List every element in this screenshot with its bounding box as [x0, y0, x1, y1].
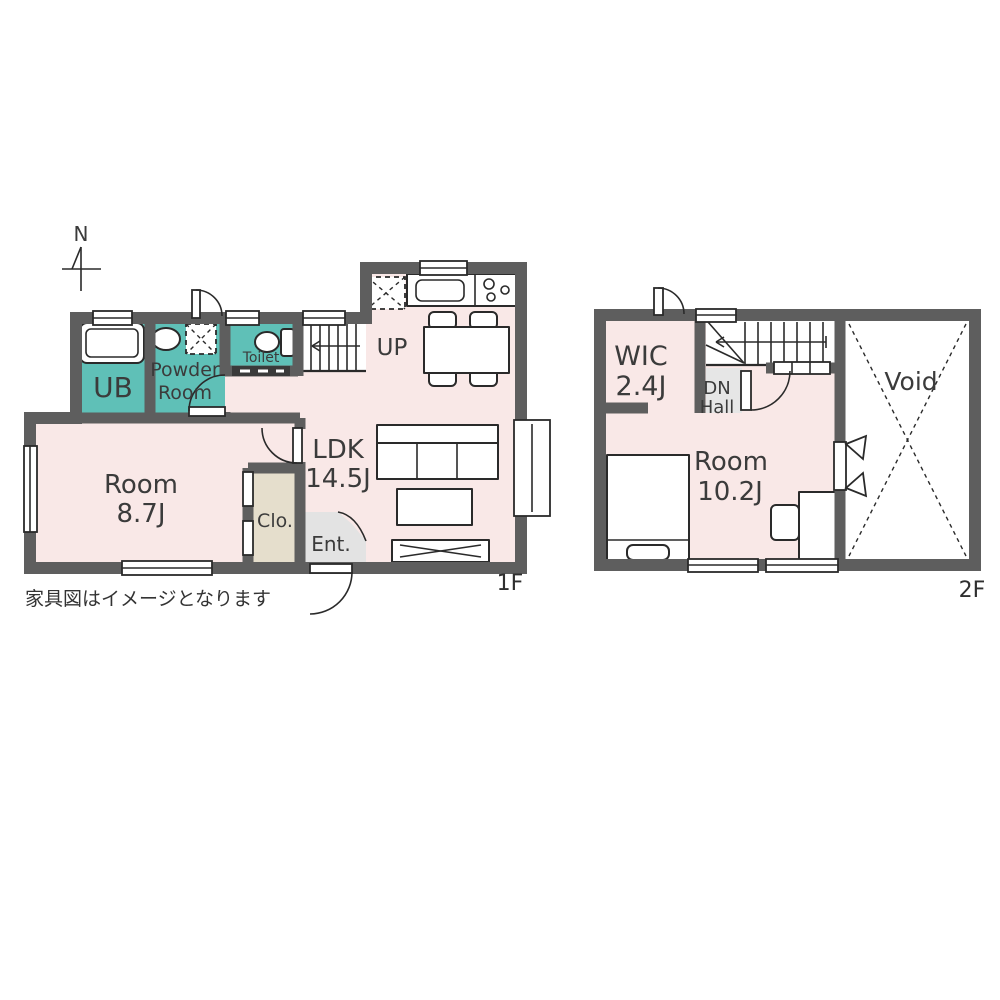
window	[766, 559, 838, 572]
window	[226, 311, 259, 325]
floor-plan-page: N	[0, 0, 1000, 1000]
2f-plan: WIC 2.4J DN Hall Room 10.2J Void 2F	[600, 288, 985, 603]
entrance-label: Ent.	[311, 532, 351, 556]
pillow	[627, 545, 669, 560]
floor-tag-1f: 1F	[497, 571, 524, 596]
hall-label-2: Hall	[700, 397, 735, 418]
wic-label-1: WIC	[614, 341, 668, 372]
refrigerator-space	[367, 277, 405, 309]
toilet-label: Toilet	[242, 350, 280, 366]
desk	[799, 492, 836, 566]
bed	[607, 455, 689, 565]
railing-opening	[774, 362, 830, 374]
north-indicator: N	[62, 222, 101, 291]
window	[420, 261, 467, 275]
sofa	[377, 425, 498, 479]
room102-label-1: Room	[694, 447, 768, 477]
furniture-disclaimer-note: 家具図はイメージとなります	[25, 588, 271, 610]
sliding-door-toilet	[232, 366, 290, 376]
washing-machine-space	[186, 324, 216, 354]
window	[122, 561, 212, 575]
powder-room-label-2: Room	[158, 382, 212, 404]
room87-label-2: 8.7J	[116, 499, 165, 529]
dining-table	[424, 327, 509, 373]
desk-chair	[771, 505, 799, 540]
bay-window	[514, 420, 550, 516]
room102-label-2: 10.2J	[697, 477, 763, 507]
void-label: Void	[884, 367, 937, 396]
room87-label-1: Room	[104, 470, 178, 500]
closet-label: Clo.	[257, 510, 293, 532]
coffee-table	[397, 489, 472, 525]
window	[24, 446, 37, 532]
window	[688, 559, 758, 572]
ldk-label-1: LDK	[312, 435, 365, 465]
window	[303, 311, 345, 325]
floor-tag-2f: 2F	[959, 578, 986, 603]
window	[696, 309, 736, 322]
compass-arrow	[62, 247, 101, 291]
window	[93, 311, 132, 325]
ub-label: UB	[93, 371, 133, 404]
stairs-up-label: UP	[377, 335, 408, 361]
powder-room-label-1: Powder	[150, 359, 220, 381]
powder-sink	[152, 328, 180, 350]
ldk-label-2: 14.5J	[305, 464, 371, 494]
floor-plan-canvas: N	[0, 0, 1000, 1000]
kitchen-counter	[407, 274, 517, 306]
entrance-door-swing	[310, 564, 352, 614]
tv-board	[392, 540, 489, 562]
wic-label-2: 2.4J	[616, 371, 667, 402]
hall-label-1: DN	[703, 378, 730, 399]
compass-n-label: N	[74, 222, 89, 246]
1f-plan: UB Powder Room Toilet UP LDK 14.5J Room …	[24, 261, 550, 614]
